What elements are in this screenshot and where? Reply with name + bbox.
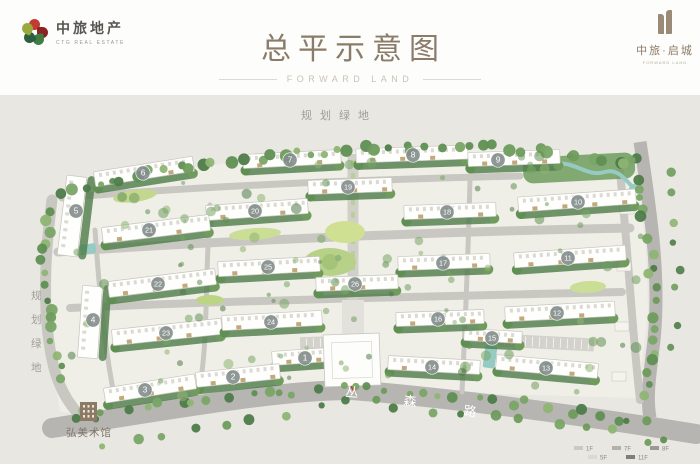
svg-text:11: 11 <box>564 254 572 263</box>
planned-green-left-label: 划 <box>31 313 42 326</box>
unit-21-marker: 21 <box>142 223 156 237</box>
title-block: 总平示意图 FORWARD LAND <box>0 0 700 84</box>
unit-25-marker: 25 <box>261 260 275 274</box>
master-plan-page: { "header": { "brand_left": { "name_cn":… <box>0 0 700 464</box>
legend-label: 11F <box>638 456 648 462</box>
svg-text:21: 21 <box>145 226 153 235</box>
unit-23-marker: 23 <box>159 326 173 340</box>
unit-15-marker: 15 <box>485 331 499 345</box>
svg-text:8: 8 <box>411 150 416 160</box>
svg-text:2: 2 <box>231 372 236 382</box>
svg-text:1: 1 <box>303 353 308 363</box>
unit-26-marker: 26 <box>348 277 362 291</box>
unit-11-marker: 11 <box>561 251 575 265</box>
page-subtitle-row: FORWARD LAND <box>0 74 700 84</box>
unit-2-marker: 2 <box>226 370 240 384</box>
unit-8-marker: 8 <box>406 148 420 162</box>
svg-text:14: 14 <box>428 363 436 372</box>
svg-text:25: 25 <box>264 263 272 272</box>
planned-green-left-label: 绿 <box>31 337 42 350</box>
unit-14-marker: 14 <box>425 360 439 374</box>
museum-icon <box>80 402 97 421</box>
svg-text:4: 4 <box>91 315 96 325</box>
unit-3-marker: 3 <box>138 383 152 397</box>
planned-green-left-label: 规 <box>31 289 42 302</box>
svg-text:10: 10 <box>574 198 582 207</box>
svg-text:17: 17 <box>439 259 447 268</box>
unit-13-marker: 13 <box>539 361 553 375</box>
unit-20-marker: 20 <box>248 204 262 218</box>
header: 中旅地产 CTG REAL ESTATE 总平示意图 FORWARD LAND … <box>0 0 700 95</box>
svg-text:26: 26 <box>351 280 359 289</box>
legend-label: 8F <box>662 447 669 453</box>
unit-12-marker: 12 <box>550 306 564 320</box>
unit-24-marker: 24 <box>264 315 278 329</box>
planned-green-top-label: 规划绿地 <box>301 108 377 122</box>
svg-text:22: 22 <box>154 280 162 289</box>
unit-17-marker: 17 <box>436 256 450 270</box>
unit-1-marker: 1 <box>298 351 312 365</box>
legend-label: 5F <box>600 456 607 462</box>
svg-text:24: 24 <box>267 318 275 327</box>
unit-9-marker: 9 <box>491 153 505 167</box>
unit-10-marker: 10 <box>571 195 585 209</box>
legend-label: 7F <box>624 447 631 453</box>
forward-land-brand: 中旅·启城 FORWARD LAND <box>626 10 700 65</box>
road-name-label: 丛 <box>345 384 359 400</box>
svg-text:5: 5 <box>74 206 79 216</box>
legend-swatch <box>588 455 597 459</box>
svg-text:13: 13 <box>542 364 550 373</box>
svg-text:20: 20 <box>251 207 259 216</box>
unit-16-marker: 16 <box>431 312 445 326</box>
svg-text:19: 19 <box>344 183 352 192</box>
svg-text:3: 3 <box>143 385 148 395</box>
site-plan-map: 1234567891011121314151617181920212223242… <box>0 95 700 464</box>
svg-text:12: 12 <box>553 309 561 318</box>
subtitle-left-rule <box>219 79 277 80</box>
unit-19-marker: 19 <box>341 180 355 194</box>
unit-4-marker: 4 <box>86 313 100 327</box>
subtitle-right-rule <box>423 79 481 80</box>
page-title: 总平示意图 <box>0 24 700 68</box>
legend-swatch <box>612 446 621 450</box>
legend-swatch <box>650 446 659 450</box>
unit-18-marker: 18 <box>440 205 454 219</box>
site-plan-svg: 1234567891011121314151617181920212223242… <box>0 95 700 464</box>
svg-text:16: 16 <box>434 315 442 324</box>
svg-text:15: 15 <box>488 334 496 343</box>
legend-label: 1F <box>586 447 593 453</box>
forward-land-name: 中旅·启城 <box>626 42 700 58</box>
unit-7-marker: 7 <box>283 153 297 167</box>
page-subtitle: FORWARD LAND <box>287 74 414 84</box>
svg-text:23: 23 <box>162 329 170 338</box>
svg-text:18: 18 <box>443 208 451 217</box>
road-name-label: 路 <box>463 403 478 419</box>
svg-text:9: 9 <box>496 155 501 165</box>
planned-green-left-label: 地 <box>31 361 42 374</box>
unit-5-marker: 5 <box>69 204 83 218</box>
svg-text:7: 7 <box>288 155 293 165</box>
svg-text:6: 6 <box>141 168 146 178</box>
legend-swatch <box>626 455 635 459</box>
unit-22-marker: 22 <box>151 277 165 291</box>
legend-swatch <box>574 446 583 450</box>
unit-6-marker: 6 <box>136 166 150 180</box>
museum-label: 弘美术馆 <box>66 426 112 439</box>
road-name-label: 森 <box>403 393 418 409</box>
forward-land-subname: FORWARD LAND <box>626 60 700 65</box>
forward-land-logo-icon <box>658 10 672 34</box>
